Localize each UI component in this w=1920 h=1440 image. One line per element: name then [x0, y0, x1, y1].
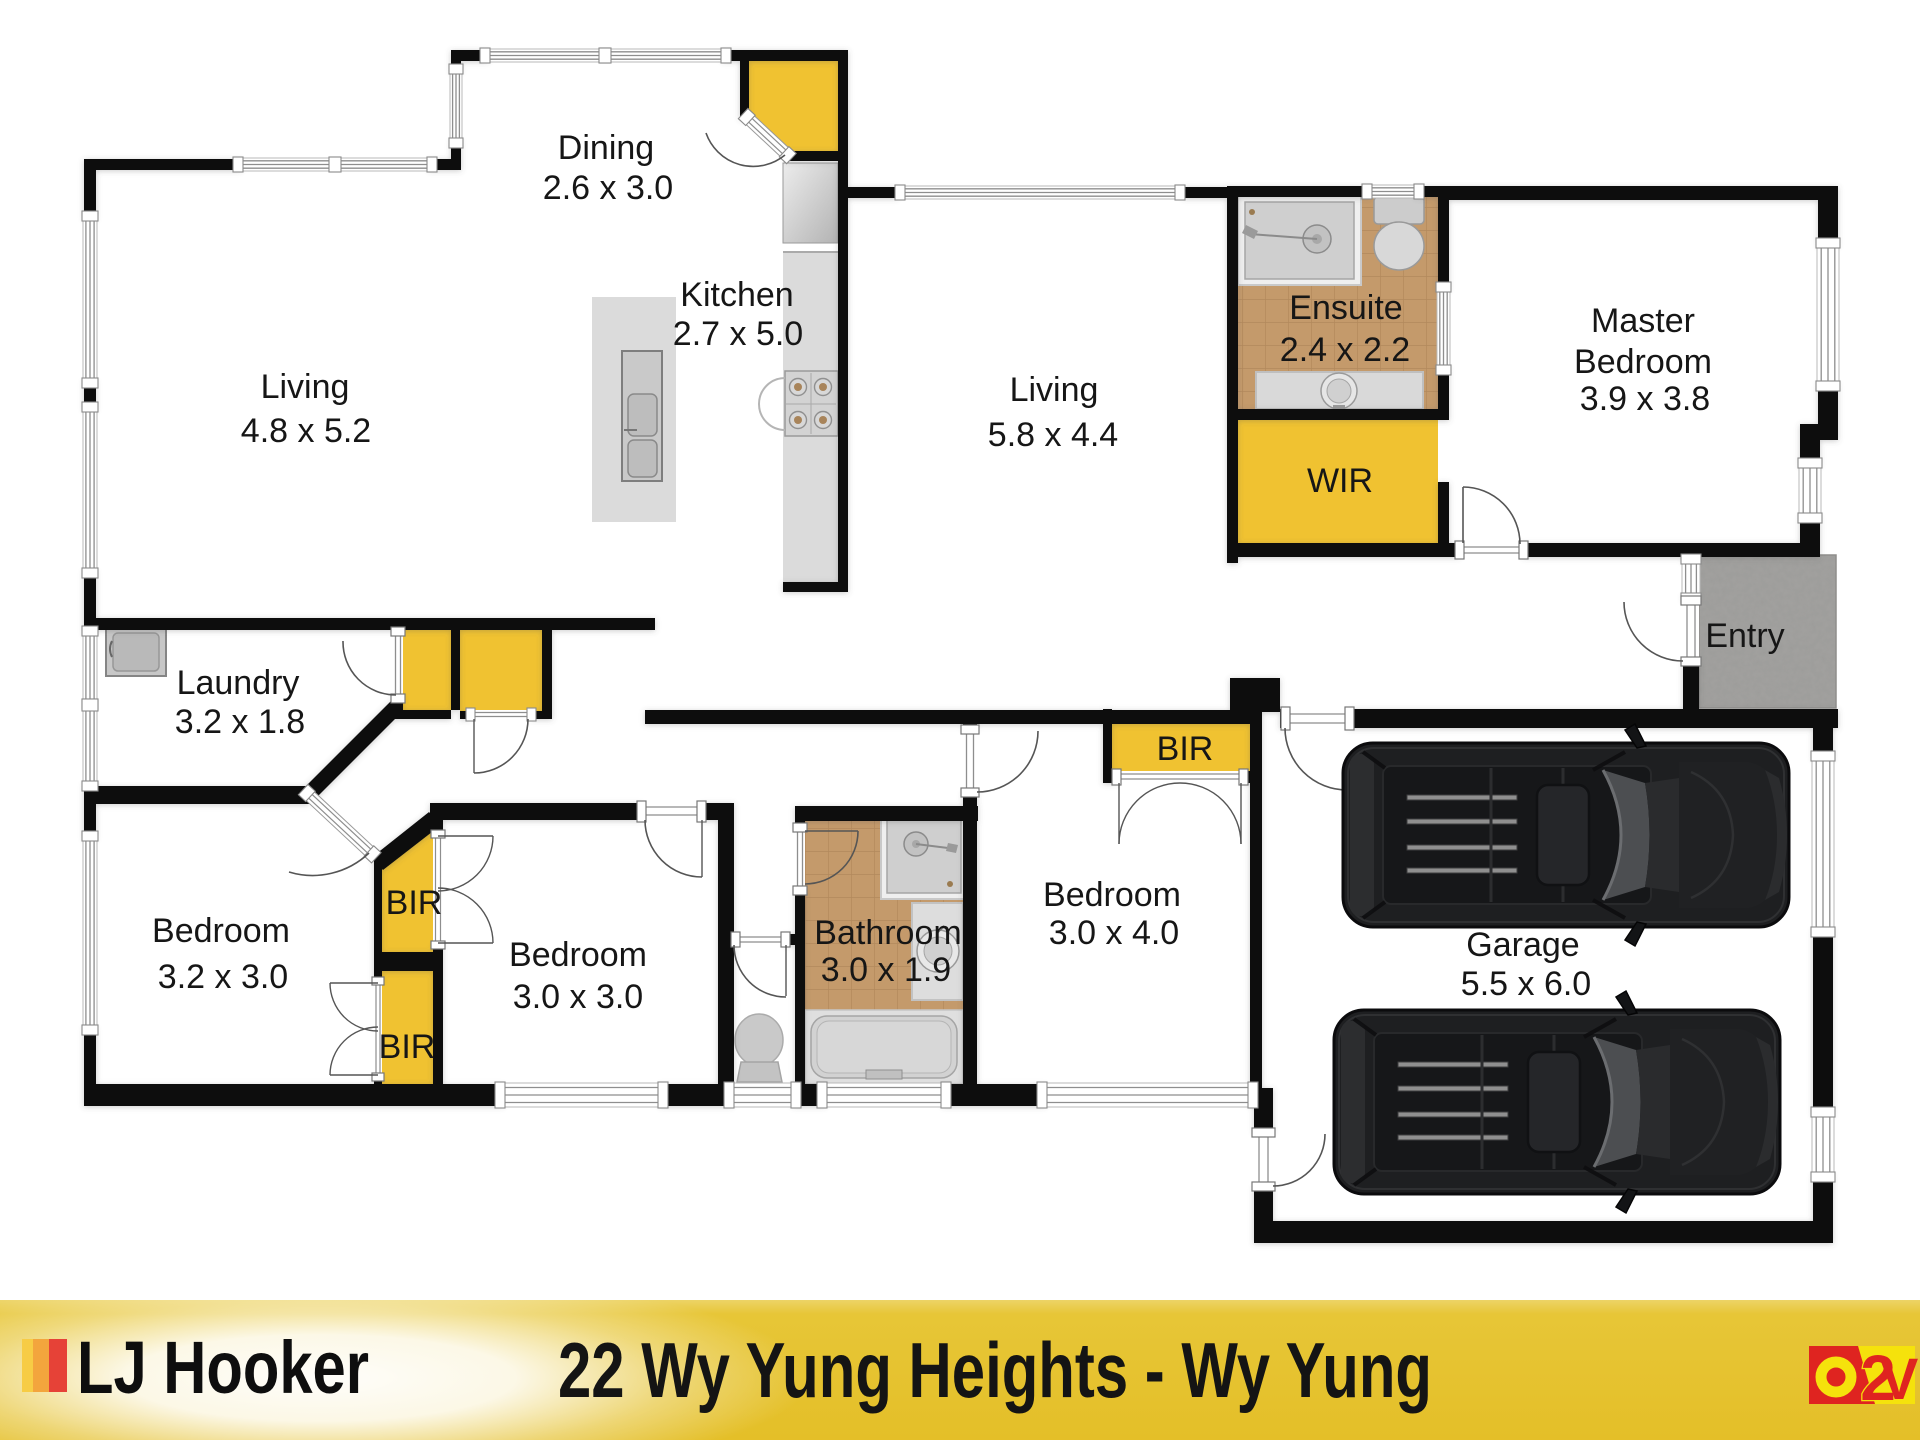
svg-text:BIR: BIR — [379, 1028, 436, 1066]
svg-text:Entry: Entry — [1705, 617, 1784, 655]
svg-text:Laundry: Laundry — [177, 664, 300, 702]
svg-text:Garage: Garage — [1466, 926, 1579, 964]
svg-text:3.9 x 3.8: 3.9 x 3.8 — [1580, 380, 1710, 418]
svg-text:Dining: Dining — [558, 129, 654, 167]
svg-text:Kitchen: Kitchen — [680, 276, 793, 314]
svg-text:V: V — [1880, 1347, 1919, 1412]
svg-text:4.8 x 5.2: 4.8 x 5.2 — [241, 412, 371, 450]
svg-text:Bathroom: Bathroom — [814, 914, 961, 952]
svg-text:BIR: BIR — [1157, 730, 1214, 768]
svg-text:Master: Master — [1591, 302, 1695, 340]
svg-text:5.5 x 6.0: 5.5 x 6.0 — [1461, 965, 1591, 1003]
svg-text:LJ Hooker: LJ Hooker — [77, 1326, 369, 1409]
svg-text:5.8 x 4.4: 5.8 x 4.4 — [988, 416, 1118, 454]
svg-text:Bedroom: Bedroom — [152, 912, 290, 950]
svg-text:3.2 x 1.8: 3.2 x 1.8 — [175, 703, 305, 741]
svg-text:Bedroom: Bedroom — [1043, 876, 1181, 914]
svg-text:2.7 x 5.0: 2.7 x 5.0 — [673, 315, 803, 353]
svg-text:3.0 x 1.9: 3.0 x 1.9 — [821, 951, 951, 989]
svg-text:22 Wy Yung Heights - Wy Yung: 22 Wy Yung Heights - Wy Yung — [558, 1326, 1432, 1414]
svg-text:2.4 x 2.2: 2.4 x 2.2 — [1280, 331, 1410, 369]
svg-text:Ensuite: Ensuite — [1289, 289, 1402, 327]
svg-text:3.0 x 4.0: 3.0 x 4.0 — [1049, 914, 1179, 952]
svg-text:Living: Living — [261, 368, 350, 406]
svg-text:Living: Living — [1010, 371, 1099, 409]
svg-text:Bedroom: Bedroom — [1574, 343, 1712, 381]
svg-text:3.0 x 3.0: 3.0 x 3.0 — [513, 978, 643, 1016]
svg-text:WIR: WIR — [1307, 462, 1373, 500]
svg-text:BIR: BIR — [386, 884, 443, 922]
svg-text:2.6 x 3.0: 2.6 x 3.0 — [543, 169, 673, 207]
svg-text:Bedroom: Bedroom — [509, 936, 647, 974]
svg-text:3.2 x 3.0: 3.2 x 3.0 — [158, 958, 288, 996]
